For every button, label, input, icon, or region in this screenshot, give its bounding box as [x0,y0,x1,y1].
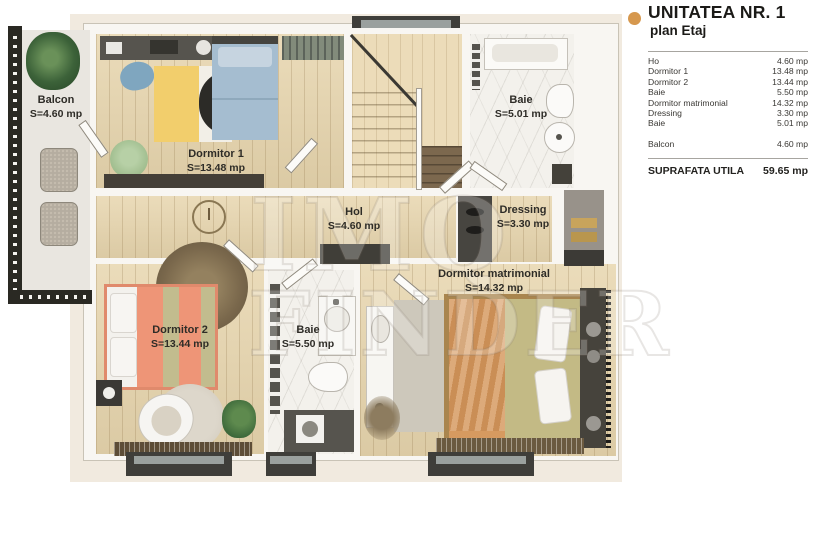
washer-icon [296,415,324,443]
balcony-railing-bottom-icon [8,290,92,304]
floorplan-page: { "colors": { "accent_orange": "#d6984e"… [0,0,814,546]
legend-row: Dressing3.30 mp [648,108,808,118]
stool-icon [196,40,211,55]
room-label-dormitor-1: Dormitor 1S=13.48 mp [150,148,282,175]
dry-plant-icon [364,396,400,440]
legend-panel: UNITATEA NR. 1 plan Etaj Ho4.60 mp Dormi… [626,2,808,178]
plant-icon [222,400,256,438]
chair-seat [146,401,186,441]
window-glass [134,456,223,464]
stairs [352,34,462,188]
headboard [212,36,278,44]
legend-total-row: SUPRAFATA UTILA59.65 mp [648,164,808,178]
legend-row: Dormitor 113.48 mp [648,66,808,76]
pillow [533,305,572,363]
legend-title: UNITATEA NR. 1 [648,2,808,23]
room-label-dressing: DressingS=3.30 mp [462,204,584,231]
legend-bullet-icon [628,12,641,25]
basin-icon [371,315,390,343]
legend-total: SUPRAFATA UTILA59.65 mp [648,164,808,178]
rug-gray-icon [394,300,446,432]
clock-hand [208,208,210,220]
window-top-icon [352,16,460,28]
legend-divider-bottom [648,158,808,159]
basket-icon [587,350,600,363]
wicker-chair-icon [40,148,78,192]
wicker-chair-icon [40,202,78,246]
pillow [534,367,572,424]
desk-icon [100,36,228,60]
bench-icon [104,174,264,188]
room-label-matrimonial: Dormitor matrimonialS=14.32 mp [406,268,582,295]
pillow [218,47,272,67]
shelf-base [564,250,604,266]
legend-row-gap [648,129,808,139]
paper-icon [106,42,122,54]
room-label-dormitor-2: Dormitor 2S=13.44 mp [112,324,248,351]
laptop-icon [150,40,178,54]
room-label-balcon: BalconS=4.60 mp [8,94,104,121]
window-glass [436,456,525,464]
tub-inner [492,44,558,62]
floor-plan: IMQ FINDER BalconS=4.60 mp Dormitor 1S=1… [0,0,630,546]
railing-ticks-bottom [14,295,88,299]
legend-row: Baie5.50 mp [648,87,808,97]
balcony [8,26,92,306]
wardrobe-icon [580,288,606,448]
lamp-icon [103,387,115,399]
sink-icon [544,122,575,153]
clock-icon [192,200,226,234]
nightstand-icon [96,380,122,406]
pouf-icon [110,140,148,178]
hol-console-icon [320,244,390,264]
double-bed-icon [444,294,588,446]
wardrobe-icon [282,36,344,60]
window-glass [270,456,312,464]
radiator-icon [472,44,480,90]
stair-steps [352,92,416,188]
legend-rows: Ho4.60 mp Dormitor 113.48 mp Dormitor 21… [648,56,808,149]
single-bed-icon [212,36,278,140]
window-bottom-icon [266,452,316,476]
window-bottom-icon [428,452,534,476]
wall-dotted-edge [606,290,611,448]
plant-icon [26,32,80,90]
legend-row: Dormitor matrimonial14.32 mp [648,98,808,108]
room-label-hol: HolS=4.60 mp [300,206,408,233]
room-label-baie: BaieS=5.50 mp [258,324,358,351]
railing-ticks [13,30,17,298]
basket-icon [586,322,601,337]
room-label-baie-etaj: BaieS=5.01 mp [470,94,572,121]
shower-icon [284,410,354,452]
drain-dot [556,134,562,140]
legend-row: Ho4.60 mp [648,56,808,66]
toilet-icon [308,362,348,392]
blanket-folds [449,299,505,431]
legend-row-balcon: Balcon4.60 mp [648,139,808,149]
shoe-box-icon [571,232,597,242]
legend-divider-top [648,51,808,52]
legend-row: Baie5.01 mp [648,118,808,128]
duvet-fold [212,98,278,100]
window-bottom-icon [126,452,232,476]
balcony-railing-icon [8,26,22,304]
window-glass [361,20,452,28]
tap-icon [333,299,339,305]
bath-shelf-icon [552,164,572,184]
washer-door [302,421,318,437]
legend-subtitle: plan Etaj [650,23,808,38]
bathtub-icon [484,38,568,70]
basket-icon [586,416,601,431]
legend-row: Dormitor 213.44 mp [648,77,808,87]
